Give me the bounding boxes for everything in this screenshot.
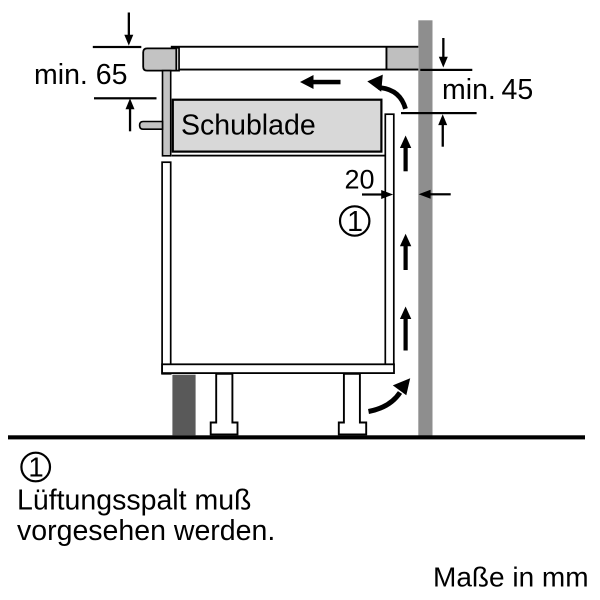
svg-text:1: 1 xyxy=(347,206,363,238)
svg-text:Schublade: Schublade xyxy=(181,109,316,141)
svg-text:min. 65: min. 65 xyxy=(34,59,127,91)
svg-text:20: 20 xyxy=(345,165,375,195)
svg-text:vorgesehen werden.: vorgesehen werden. xyxy=(17,515,275,547)
svg-text:Lüftungsspalt muß: Lüftungsspalt muß xyxy=(17,485,251,517)
svg-text:Maße in mm: Maße in mm xyxy=(433,562,589,593)
svg-text:1: 1 xyxy=(28,452,43,483)
svg-text:min. 45: min. 45 xyxy=(442,74,533,106)
